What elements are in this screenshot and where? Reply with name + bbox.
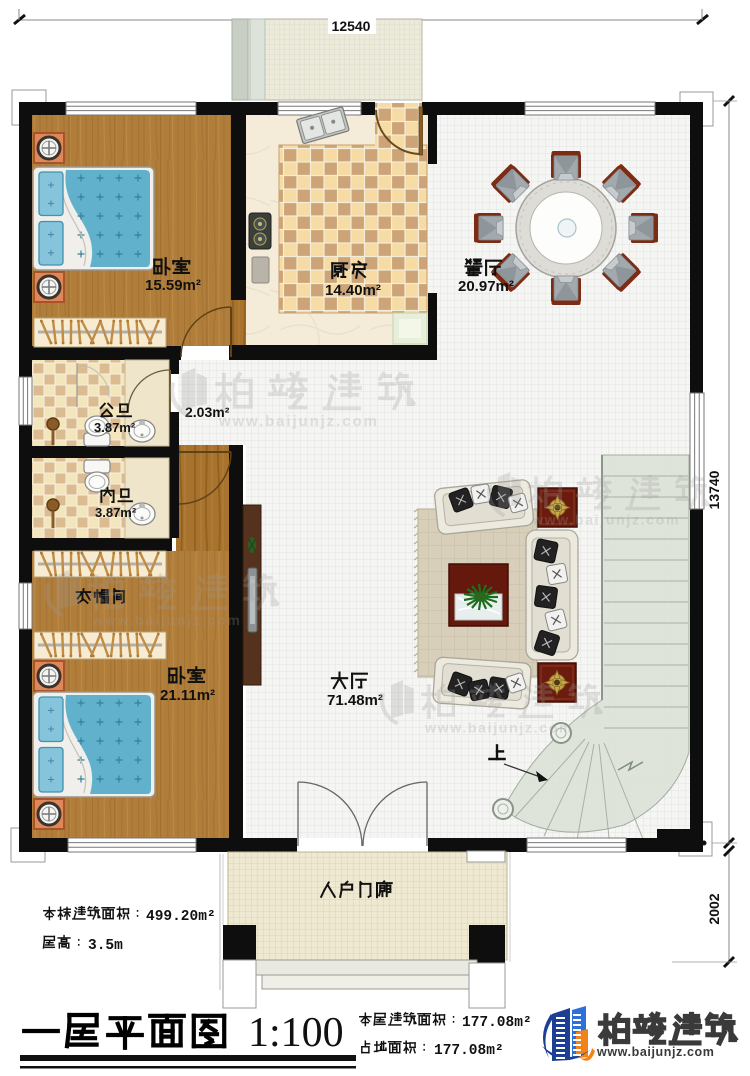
svg-text:www.baijunjz.com: www.baijunjz.com bbox=[218, 413, 379, 430]
svg-text:www.baijunjz.com: www.baijunjz.com bbox=[531, 511, 680, 527]
svg-text:3.87m²: 3.87m² bbox=[95, 505, 137, 520]
svg-text:3.87m²: 3.87m² bbox=[94, 420, 136, 435]
svg-text:12540: 12540 bbox=[332, 18, 371, 34]
svg-text:www.baijunjz.com: www.baijunjz.com bbox=[424, 719, 573, 735]
svg-text:14.40m²: 14.40m² bbox=[325, 282, 381, 299]
svg-text:177.08m²: 177.08m² bbox=[434, 1043, 504, 1059]
svg-text:2002: 2002 bbox=[706, 893, 722, 924]
svg-text:177.08m²: 177.08m² bbox=[462, 1015, 532, 1031]
svg-text:71.48m²: 71.48m² bbox=[327, 692, 383, 709]
svg-text:3.5m: 3.5m bbox=[88, 938, 123, 954]
svg-text:499.20m²: 499.20m² bbox=[146, 909, 216, 925]
svg-text:1:100: 1:100 bbox=[248, 1010, 344, 1056]
svg-text:www.baijunjz.com: www.baijunjz.com bbox=[91, 612, 242, 628]
svg-text:21.11m²: 21.11m² bbox=[160, 687, 215, 704]
svg-text:20.97m²: 20.97m² bbox=[458, 278, 514, 295]
svg-text:15.59m²: 15.59m² bbox=[145, 277, 201, 294]
svg-text:www.baijunjz.com: www.baijunjz.com bbox=[596, 1045, 714, 1059]
